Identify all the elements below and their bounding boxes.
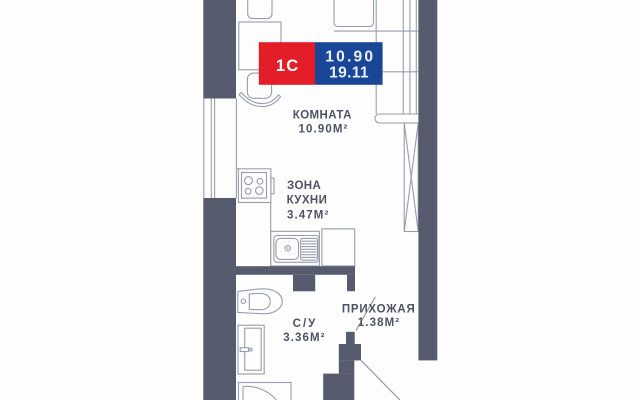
svg-text:1.38М²: 1.38М² xyxy=(358,317,400,329)
svg-text:3.36М²: 3.36М² xyxy=(283,332,325,344)
svg-text:КОМНАТА: КОМНАТА xyxy=(293,110,352,122)
svg-text:С/У: С/У xyxy=(293,318,318,330)
svg-text:ЗОНА: ЗОНА xyxy=(287,180,321,192)
svg-text:3.47М²: 3.47М² xyxy=(287,210,329,222)
svg-text:10.90М²: 10.90М² xyxy=(299,124,349,136)
svg-text:19.11: 19.11 xyxy=(329,65,369,82)
svg-text:КУХНИ: КУХНИ xyxy=(287,195,328,207)
svg-text:1С: 1С xyxy=(276,56,299,75)
svg-text:ПРИХОЖАЯ: ПРИХОЖАЯ xyxy=(342,304,416,316)
svg-text:10.90: 10.90 xyxy=(325,49,375,66)
